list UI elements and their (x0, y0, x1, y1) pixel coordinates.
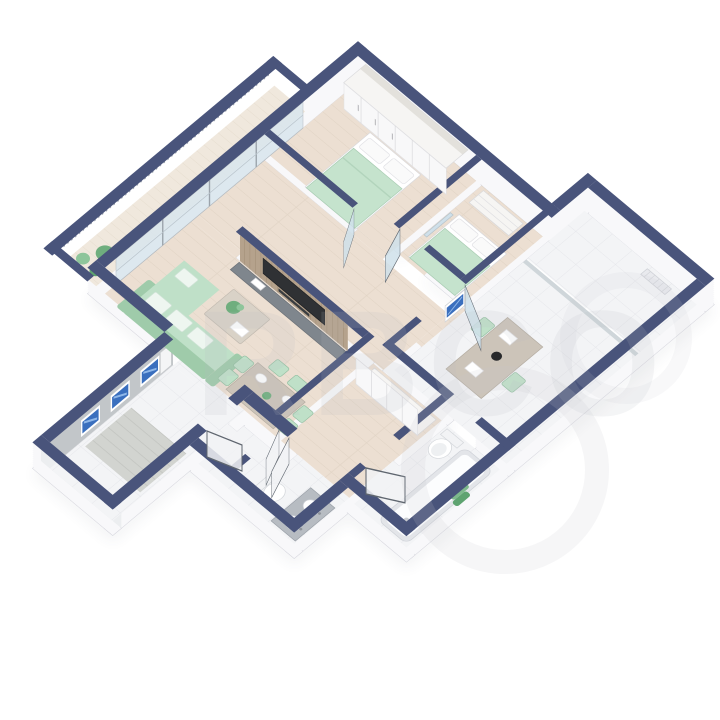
floor-plan-render: RBCO (0, 0, 720, 720)
isometric-floor-plan-svg: RBCO (0, 0, 720, 720)
